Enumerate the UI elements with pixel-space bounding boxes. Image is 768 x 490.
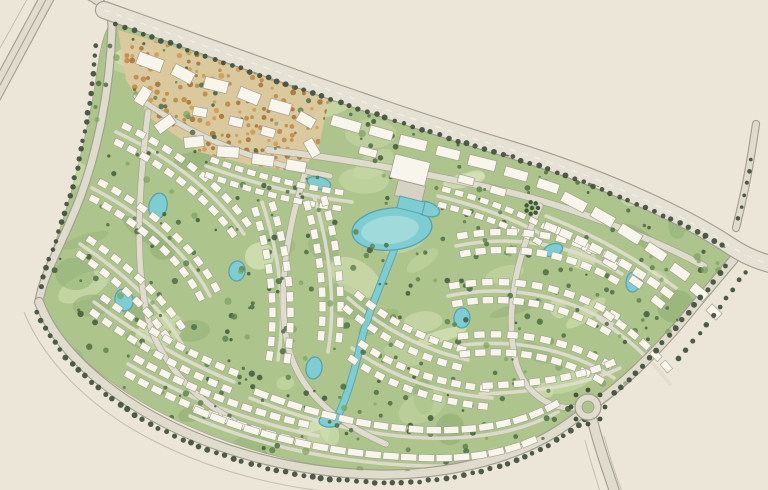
tree-dot [163, 104, 167, 108]
tree-dot [664, 268, 668, 272]
street-tree-dot [248, 461, 254, 467]
shrub-dot [143, 176, 150, 183]
villa-building [482, 382, 493, 389]
tree-dot [406, 447, 411, 452]
tree-dot [647, 226, 651, 230]
orchard-tree-dot [270, 118, 274, 122]
orchard-tree-dot [202, 74, 206, 78]
shrub-dot [696, 259, 700, 263]
orchard-tree-dot [290, 133, 295, 138]
roundabout-tree-dot [569, 405, 574, 410]
tree-dot [267, 186, 272, 191]
street-tree-dot [747, 169, 752, 174]
orchard-tree-dot [260, 148, 264, 152]
villa-building [335, 271, 343, 282]
villa-building [262, 249, 271, 260]
tree-dot [281, 329, 286, 334]
tree-dot [349, 428, 354, 433]
tree-dot [641, 318, 644, 321]
tree-dot [168, 236, 172, 240]
street-tree-dot [338, 100, 344, 106]
tree-dot [645, 326, 648, 329]
street-tree-dot [318, 475, 324, 481]
tree-dot [349, 113, 353, 117]
tree-dot [527, 191, 530, 194]
street-tree-dot [122, 25, 127, 30]
street-tree-dot [53, 339, 58, 344]
street-tree-dot [88, 91, 93, 96]
orchard-tree-dot [290, 138, 294, 142]
tree-dot [197, 268, 201, 272]
tree-dot [211, 103, 214, 106]
tree-dot [162, 212, 166, 216]
street-tree-dot [600, 187, 605, 192]
street-tree-dot [222, 452, 227, 457]
tree-dot [393, 144, 399, 150]
street-tree-dot [572, 176, 577, 181]
orchard-tree-dot [282, 138, 287, 143]
tree-dot [111, 171, 116, 176]
street-tree-dot [113, 22, 118, 27]
tree-dot [250, 384, 255, 389]
villa-building [267, 336, 275, 347]
street-tree-dot [536, 163, 542, 169]
tree-dot [366, 122, 371, 127]
roundabout-tree-dot [598, 393, 603, 398]
orchard-tree-dot [205, 121, 210, 126]
street-tree-dot [419, 127, 425, 133]
street-tree-dot [95, 385, 101, 391]
tree-dot [108, 44, 113, 49]
street-tree-dot [40, 274, 45, 279]
street-tree-dot [426, 477, 431, 482]
street-tree-dot [77, 156, 82, 161]
street-tree-dot [643, 205, 648, 210]
orchard-tree-dot [255, 124, 259, 128]
tree-dot [93, 275, 99, 281]
orchard-tree-dot [271, 87, 274, 90]
orchard-tree-dot [226, 134, 231, 139]
shrub-dot [373, 402, 376, 405]
street-tree-dot [702, 233, 708, 239]
street-tree-dot [705, 287, 710, 292]
roundabout-tree-dot [603, 405, 608, 410]
street-tree-dot [247, 69, 253, 75]
shrub-dot [169, 189, 174, 194]
tree-dot [212, 135, 216, 139]
tree-dot [575, 308, 579, 312]
tree-dot [254, 148, 258, 152]
street-tree-dot [398, 480, 403, 485]
street-tree-dot [374, 111, 380, 117]
roundabout-tree-dot [534, 201, 538, 205]
tree-dot [261, 399, 264, 402]
orchard-tree-dot [261, 115, 266, 120]
villa-building [498, 278, 509, 285]
tree-dot [92, 319, 98, 325]
villa-building [318, 316, 326, 326]
street-tree-dot [677, 220, 683, 226]
street-tree-dot [382, 115, 388, 121]
villa-building [506, 228, 517, 235]
orchard-tree-dot [235, 134, 238, 137]
tree-dot [198, 400, 204, 406]
tree-dot [133, 88, 136, 91]
street-tree-dot [292, 471, 298, 477]
villa-building [269, 322, 276, 332]
street-tree-dot [230, 63, 235, 68]
tree-dot [261, 183, 266, 188]
street-tree-dot [132, 27, 138, 33]
shrub-dot [274, 122, 278, 126]
villa-building [482, 297, 493, 304]
orchard-tree-dot [213, 100, 216, 103]
tree-dot [525, 185, 531, 191]
street-tree-dot [345, 478, 350, 483]
street-tree-dot [363, 479, 368, 484]
tree-dot [463, 220, 467, 224]
orchard-tree-dot [221, 134, 224, 137]
street-tree-dot [39, 284, 44, 289]
street-tree-dot [737, 277, 742, 282]
street-tree-dot [176, 43, 182, 49]
tree-dot [242, 367, 245, 370]
tree-dot [294, 132, 297, 135]
tree-dot [245, 378, 248, 381]
tree-dot [408, 284, 412, 288]
shrub-dot [117, 292, 124, 299]
orchard-tree-dot [196, 62, 200, 66]
street-tree-dot [607, 191, 612, 196]
villa-building [490, 247, 501, 254]
tree-dot [172, 278, 178, 284]
street-tree-dot [679, 317, 684, 322]
shrub-dot [94, 117, 99, 122]
street-tree-dot [505, 461, 510, 466]
villa-building [334, 189, 344, 196]
tree-dot [332, 220, 337, 225]
street-tree-dot [723, 264, 728, 269]
street-tree-dot [103, 392, 108, 397]
roundabout-tree-dot [534, 210, 538, 214]
masterplan-map [0, 0, 768, 490]
villa-building [473, 229, 485, 237]
street-tree-dot [64, 202, 69, 207]
street-tree-dot [427, 129, 432, 134]
orchard-tree-dot [252, 108, 256, 112]
villa-building [418, 454, 434, 461]
tree-dot [423, 250, 427, 254]
roundabout-tree-dot [586, 422, 591, 427]
shrub-dot [433, 279, 437, 283]
shrub-dot [238, 269, 243, 274]
orchard-tree-dot [129, 58, 135, 64]
street-tree-dot [164, 429, 169, 434]
orchard-tree-dot [195, 70, 198, 73]
shrub-dot [150, 300, 154, 304]
apartment-block [183, 135, 204, 148]
tree-dot [286, 190, 290, 194]
tree-dot [546, 389, 550, 393]
tree-dot [257, 375, 263, 381]
street-tree-dot [310, 90, 316, 96]
villa-building [490, 349, 501, 356]
orchard-tree-dot [225, 101, 230, 106]
roundabout-tree-dot [524, 208, 528, 212]
tree-dot [476, 186, 482, 192]
street-tree-dot [711, 238, 717, 244]
tree-dot [407, 367, 410, 370]
orchard-tree-dot [238, 140, 242, 144]
street-tree-dot [274, 78, 280, 84]
tree-dot [205, 161, 208, 164]
tree-dot [558, 267, 563, 272]
street-tree-dot [70, 184, 75, 189]
tree-dot [271, 214, 274, 217]
street-tree-dot [72, 175, 77, 180]
shrub-dot [126, 162, 130, 166]
street-tree-dot [695, 229, 701, 235]
tree-dot [322, 395, 327, 400]
street-tree-dot [691, 302, 697, 308]
orchard-tree-dot [238, 110, 241, 113]
villa-building [321, 186, 331, 193]
tree-dot [136, 153, 140, 157]
street-tree-dot [446, 136, 452, 142]
street-tree-dot [676, 356, 682, 362]
orchard-tree-dot [124, 53, 129, 58]
orchard-tree-dot [197, 118, 202, 123]
street-tree-dot [491, 149, 497, 155]
orchard-tree-dot [173, 98, 178, 103]
street-tree-dot [139, 417, 144, 422]
street-tree-dot [68, 193, 73, 198]
street-tree-dot [538, 447, 543, 452]
villa-building [453, 453, 470, 461]
villa-building [436, 454, 452, 461]
street-tree-dot [568, 428, 574, 434]
street-tree-dot [530, 451, 535, 456]
street-tree-dot [319, 93, 325, 99]
tree-dot [524, 313, 530, 319]
villa-building [336, 286, 343, 296]
street-tree-dot [661, 214, 666, 219]
villa-building [490, 229, 501, 236]
tree-dot [306, 234, 310, 238]
villa-building [269, 307, 276, 317]
tree-dot [428, 415, 434, 421]
street-tree-dot [464, 140, 470, 146]
orchard-tree-dot [267, 139, 270, 142]
street-tree-dot [56, 229, 61, 234]
tree-dot [338, 396, 341, 399]
orchard-tree-dot [203, 91, 208, 96]
apartment-block [217, 146, 240, 159]
tree-dot [193, 150, 196, 153]
tree-dot [269, 447, 275, 453]
shrub-dot [618, 334, 622, 338]
street-tree-dot [239, 459, 244, 464]
orchard-tree-dot [211, 146, 215, 150]
street-tree-dot [214, 450, 219, 455]
tree-dot [106, 223, 109, 226]
orchard-tree-dot [202, 147, 207, 152]
tree-dot [441, 237, 446, 242]
orchard-tree-dot [246, 137, 251, 142]
orchard-tree-dot [186, 100, 191, 105]
orchard-tree-dot [250, 129, 255, 134]
tree-dot [379, 414, 383, 418]
street-tree-dot [80, 139, 84, 143]
roundabout-tree-dot [528, 200, 532, 204]
tree-dot [156, 151, 159, 154]
tree-dot [500, 396, 505, 401]
street-tree-dot [470, 470, 475, 475]
street-tree-dot [633, 370, 639, 376]
villa-building [515, 279, 527, 287]
tree-dot [107, 154, 110, 157]
street-tree-dot [743, 270, 747, 274]
tree-dot [175, 81, 178, 84]
street-tree-dot [62, 211, 68, 217]
street-tree-dot [155, 426, 160, 431]
street-tree-dot [408, 479, 413, 484]
orchard-tree-dot [227, 74, 230, 77]
shrub-dot [224, 298, 231, 305]
villa-building [459, 249, 471, 258]
street-tree-dot [640, 364, 645, 369]
tree-dot [605, 322, 609, 326]
street-tree-dot [434, 477, 439, 482]
roundabout-island [582, 401, 594, 413]
tree-dot [238, 382, 241, 385]
street-tree-dot [683, 347, 688, 352]
street-tree-dot [501, 152, 506, 157]
shrub-dot [382, 174, 386, 178]
street-tree-dot [522, 454, 528, 460]
tree-dot [403, 395, 408, 400]
tree-dot [513, 434, 518, 439]
orchard-tree-dot [250, 115, 254, 119]
street-tree-dot [158, 38, 164, 44]
villa-building [513, 380, 525, 388]
roundabout-tree-dot [528, 212, 532, 216]
street-tree-dot [647, 355, 652, 360]
street-tree-dot [365, 109, 370, 114]
villa-building [285, 276, 293, 287]
villa-building [505, 349, 517, 357]
tree-dot [511, 358, 513, 360]
street-tree-dot [90, 81, 95, 86]
tree-dot [626, 208, 630, 212]
tree-dot [86, 344, 92, 350]
street-tree-dot [75, 166, 80, 171]
street-tree-dot [690, 339, 695, 344]
street-tree-dot [70, 361, 76, 367]
tree-dot [374, 390, 379, 395]
orchard-tree-dot [310, 107, 313, 110]
tree-dot [595, 293, 599, 297]
street-tree-dot [204, 447, 210, 453]
villa-building [456, 231, 468, 240]
orchard-tree-dot [292, 115, 297, 120]
tree-dot [406, 291, 411, 296]
orchard-tree-dot [236, 101, 241, 106]
street-tree-dot [38, 318, 44, 324]
street-tree-dot [203, 54, 208, 59]
villa-building [457, 332, 469, 340]
shrub-dot [299, 280, 304, 285]
tree-dot [316, 176, 320, 180]
tree-dot [299, 193, 302, 196]
street-tree-dot [652, 209, 657, 214]
villa-building [544, 375, 556, 384]
orchard-tree-dot [277, 129, 282, 134]
orchard-tree-dot [154, 89, 160, 95]
tree-dot [378, 155, 383, 160]
street-tree-dot [93, 43, 98, 48]
street-tree-dot [327, 476, 333, 482]
tree-dot [190, 130, 196, 136]
orchard-tree-dot [130, 45, 134, 49]
tree-dot [304, 250, 309, 255]
villa-building [383, 452, 399, 460]
villa-building [475, 349, 486, 357]
street-tree-dot [257, 73, 262, 78]
tree-dot [544, 415, 550, 421]
street-tree-dot [84, 119, 89, 124]
orchard-tree-dot [165, 92, 169, 96]
tree-dot [701, 250, 705, 254]
street-tree-dot [51, 247, 56, 252]
shrub-dot [485, 437, 488, 440]
villa-building [507, 331, 519, 339]
tree-dot [445, 319, 451, 325]
tree-dot [384, 243, 389, 248]
street-tree-dot [48, 333, 53, 338]
tree-dot [274, 147, 277, 150]
tree-dot [236, 228, 239, 231]
orchard-tree-dot [260, 78, 264, 82]
tree-dot [340, 384, 346, 390]
orchard-tree-dot [214, 108, 219, 113]
orchard-tree-dot [181, 97, 186, 102]
street-tree-dot [355, 106, 360, 111]
tree-dot [378, 283, 381, 286]
street-tree-dot [668, 216, 673, 221]
tree-dot [381, 259, 384, 262]
orchard-tree-dot [195, 84, 199, 88]
tree-dot [251, 301, 255, 305]
villa-building [529, 378, 541, 386]
tree-dot [196, 218, 200, 222]
orchard-tree-dot [162, 98, 166, 102]
street-tree-dot [194, 51, 199, 56]
street-tree-dot [43, 265, 49, 271]
street-tree-dot [273, 468, 279, 474]
orchard-tree-dot [154, 52, 159, 57]
street-tree-dot [561, 433, 566, 438]
orchard-tree-dot [124, 58, 129, 63]
street-tree-dot [82, 373, 88, 379]
street-tree-dot [213, 57, 218, 62]
street-tree-dot [354, 479, 359, 484]
tree-dot [334, 423, 339, 428]
tree-dot [543, 269, 549, 275]
street-tree-dot [54, 239, 58, 243]
villa-building [478, 402, 489, 410]
street-tree-dot [686, 310, 692, 316]
